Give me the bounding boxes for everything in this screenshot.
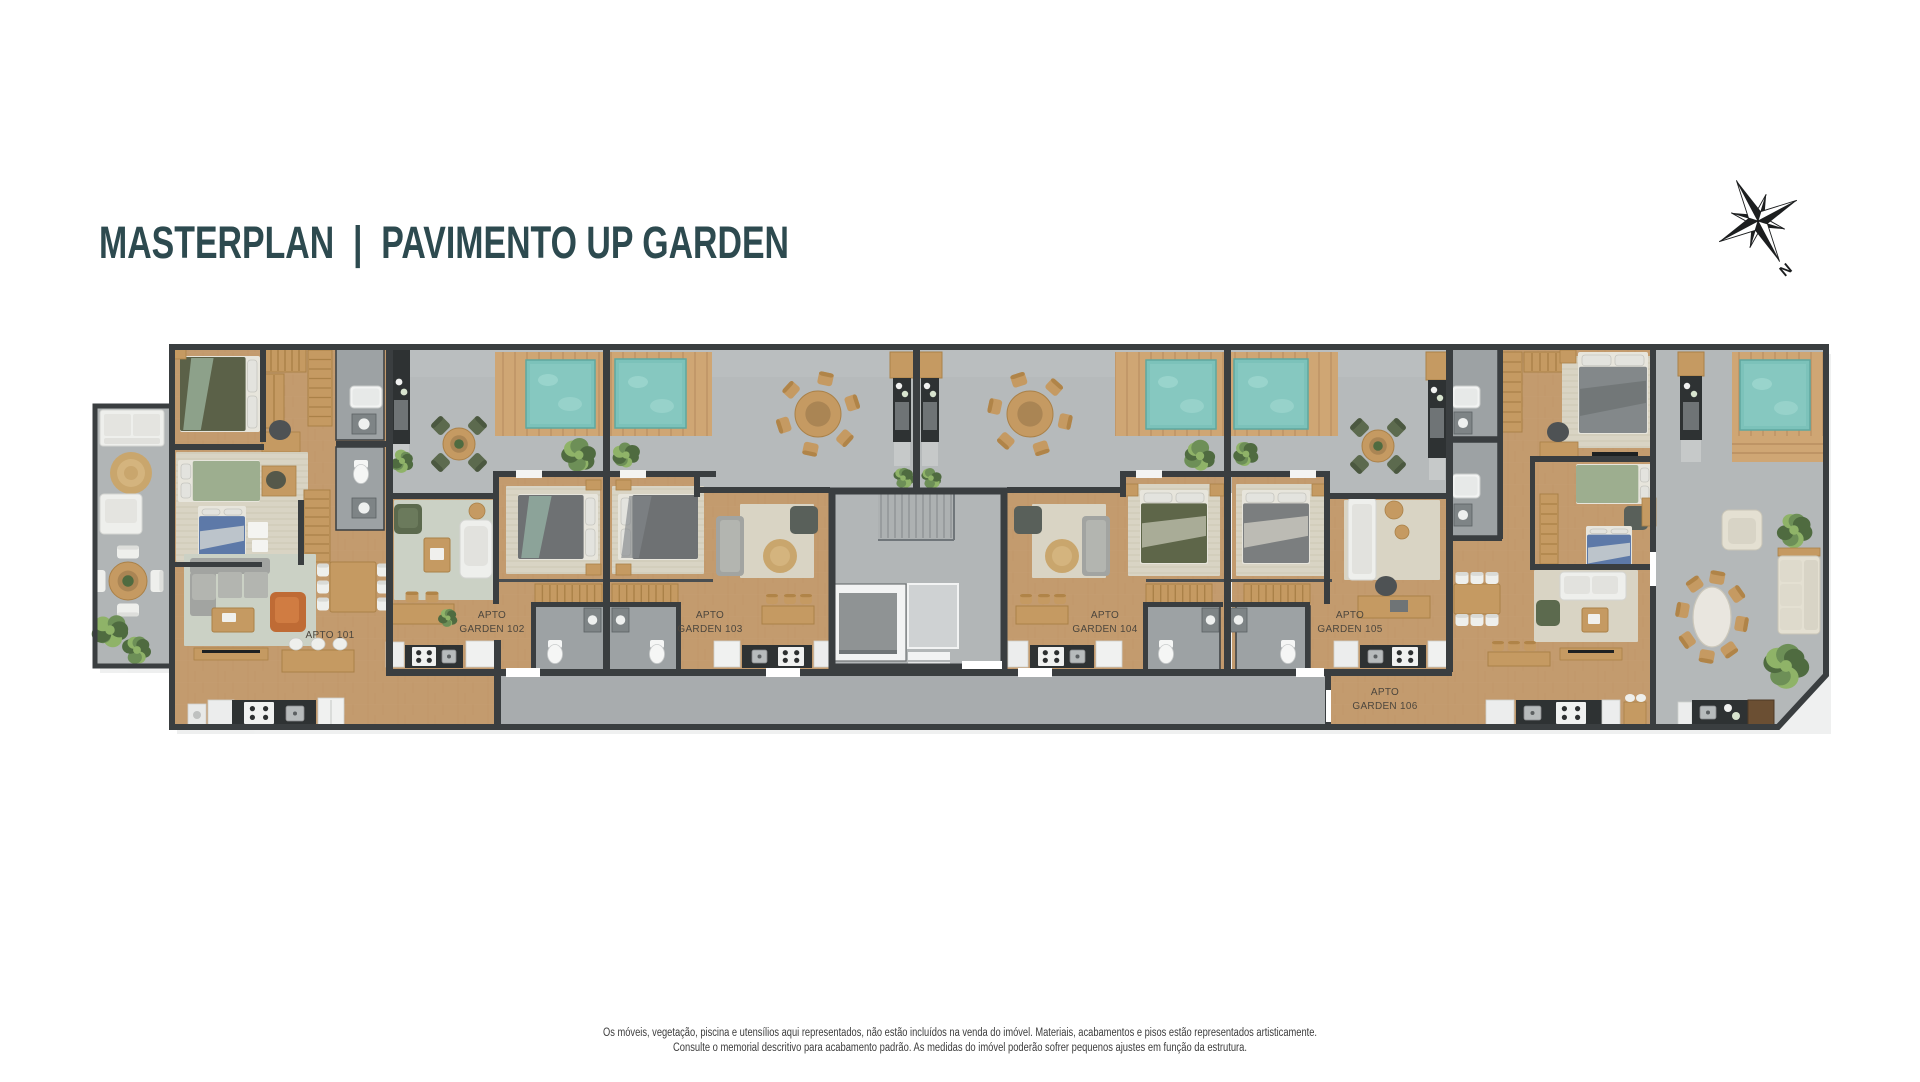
svg-text:APTO: APTO — [696, 610, 724, 621]
svg-text:APTO: APTO — [1371, 687, 1399, 698]
svg-text:Consulte o memorial descritivo: Consulte o memorial descritivo para acab… — [673, 1042, 1247, 1054]
svg-text:GARDEN 104: GARDEN 104 — [1072, 624, 1137, 635]
svg-text:APTO: APTO — [478, 610, 506, 621]
svg-text:APTO 101: APTO 101 — [306, 630, 355, 641]
svg-text:MASTERPLAN | PAVIMENTO UP GA: MASTERPLAN | PAVIMENTO UP GARDEN — [99, 217, 789, 269]
svg-text:Os móveis, vegetação, piscina: Os móveis, vegetação, piscina e utensíli… — [603, 1027, 1317, 1039]
svg-text:GARDEN 102: GARDEN 102 — [459, 624, 524, 635]
svg-text:GARDEN 105: GARDEN 105 — [1317, 624, 1382, 635]
svg-text:APTO: APTO — [1336, 610, 1364, 621]
svg-text:GARDEN 106: GARDEN 106 — [1352, 701, 1417, 712]
svg-text:APTO: APTO — [1091, 610, 1119, 621]
svg-text:GARDEN 103: GARDEN 103 — [677, 624, 742, 635]
